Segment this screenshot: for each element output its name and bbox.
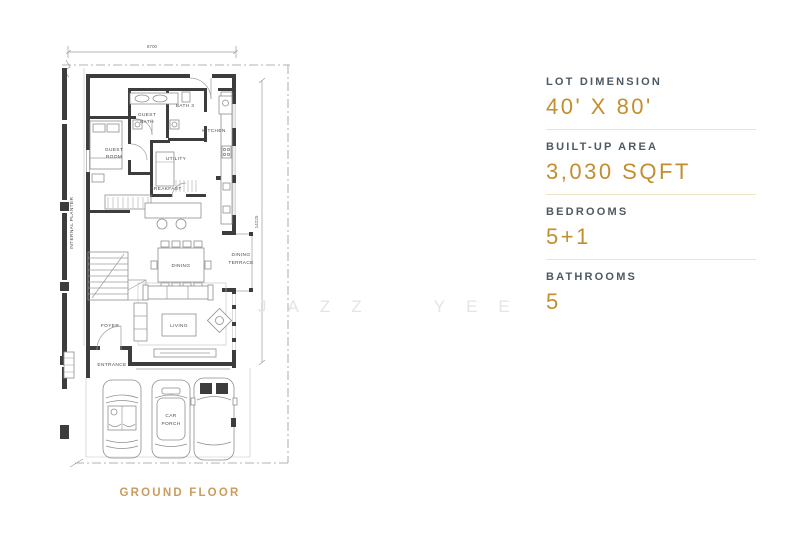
room-label-car-porch: CAR <box>165 413 176 419</box>
floor-title: GROUND FLOOR <box>120 487 241 499</box>
room-label-breakfast: BREAKFAST <box>150 186 181 192</box>
spec-bathrooms: BATHROOMS 5 <box>546 271 758 315</box>
dimension-right: 14225 <box>254 78 265 365</box>
spec-value: 40' X 80' <box>546 94 758 120</box>
room-label-dining-terrace: DINING <box>232 252 251 258</box>
kitchen-counter <box>219 92 232 224</box>
room-label-foyer: FOYER <box>101 323 119 329</box>
spec-label: LOT DIMENSION <box>546 76 758 88</box>
room-label-kitchen: KITCHEN <box>202 128 226 134</box>
stairs <box>88 252 146 300</box>
svg-text:AREA: AREA <box>159 193 174 199</box>
spec-label: BEDROOMS <box>546 206 758 218</box>
car-2 <box>152 380 190 458</box>
spec-label: BATHROOMS <box>546 271 758 283</box>
spec-bedrooms: BEDROOMS 5+1 <box>546 206 758 260</box>
svg-text:PORCH: PORCH <box>161 421 180 427</box>
specs-panel: LOT DIMENSION 40' X 80' BUILT-UP AREA 3,… <box>546 76 758 324</box>
svg-text:ROOM: ROOM <box>106 154 122 160</box>
room-label-dining: DINING <box>172 263 191 269</box>
boundary-wall-left <box>60 68 69 439</box>
room-label-bath3: BATH 3 <box>176 103 195 109</box>
spec-lot-dimension: LOT DIMENSION 40' X 80' <box>546 76 758 130</box>
dimension-depth-label: 14225 <box>254 215 259 228</box>
room-label-guest-bath: GUEST <box>138 112 156 118</box>
room-label-entrance: ENTRANCE <box>97 362 126 368</box>
bath-fixtures <box>130 92 190 129</box>
svg-text:BATH: BATH <box>140 119 154 125</box>
house-walls <box>86 74 236 378</box>
divider <box>546 194 756 195</box>
room-label-utility: UTILITY <box>166 156 187 162</box>
spec-value: 5 <box>546 289 758 315</box>
floor-plan: 8700 14225 <box>0 0 310 539</box>
living-room-furniture <box>134 283 232 357</box>
room-label-living: LIVING <box>170 323 188 329</box>
breakfast-island <box>145 203 201 229</box>
divider <box>546 259 756 260</box>
guest-room-furniture <box>90 121 151 209</box>
dimension-width-label: 8700 <box>147 44 158 49</box>
spec-value: 3,030 SQFT <box>546 159 758 185</box>
room-label-guest-room: GUEST <box>105 147 123 153</box>
car-1 <box>103 380 141 458</box>
spec-value: 5+1 <box>546 224 758 250</box>
spec-label: BUILT-UP AREA <box>546 141 758 153</box>
dimension-top: 8700 <box>66 44 238 58</box>
car-3 <box>191 378 237 460</box>
room-label-internal-planter: INTERNAL PLANTER <box>69 197 75 250</box>
shoe-cabinet <box>64 352 74 378</box>
svg-text:TERRACE: TERRACE <box>228 260 253 266</box>
watermark: JAZZ YEE <box>258 297 531 317</box>
divider <box>546 129 756 130</box>
spec-built-up-area: BUILT-UP AREA 3,030 SQFT <box>546 141 758 195</box>
